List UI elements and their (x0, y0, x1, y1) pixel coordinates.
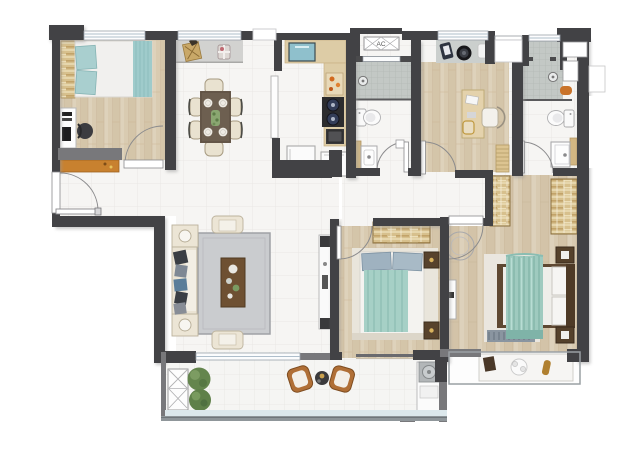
svg-text:AC: AC (376, 41, 385, 48)
